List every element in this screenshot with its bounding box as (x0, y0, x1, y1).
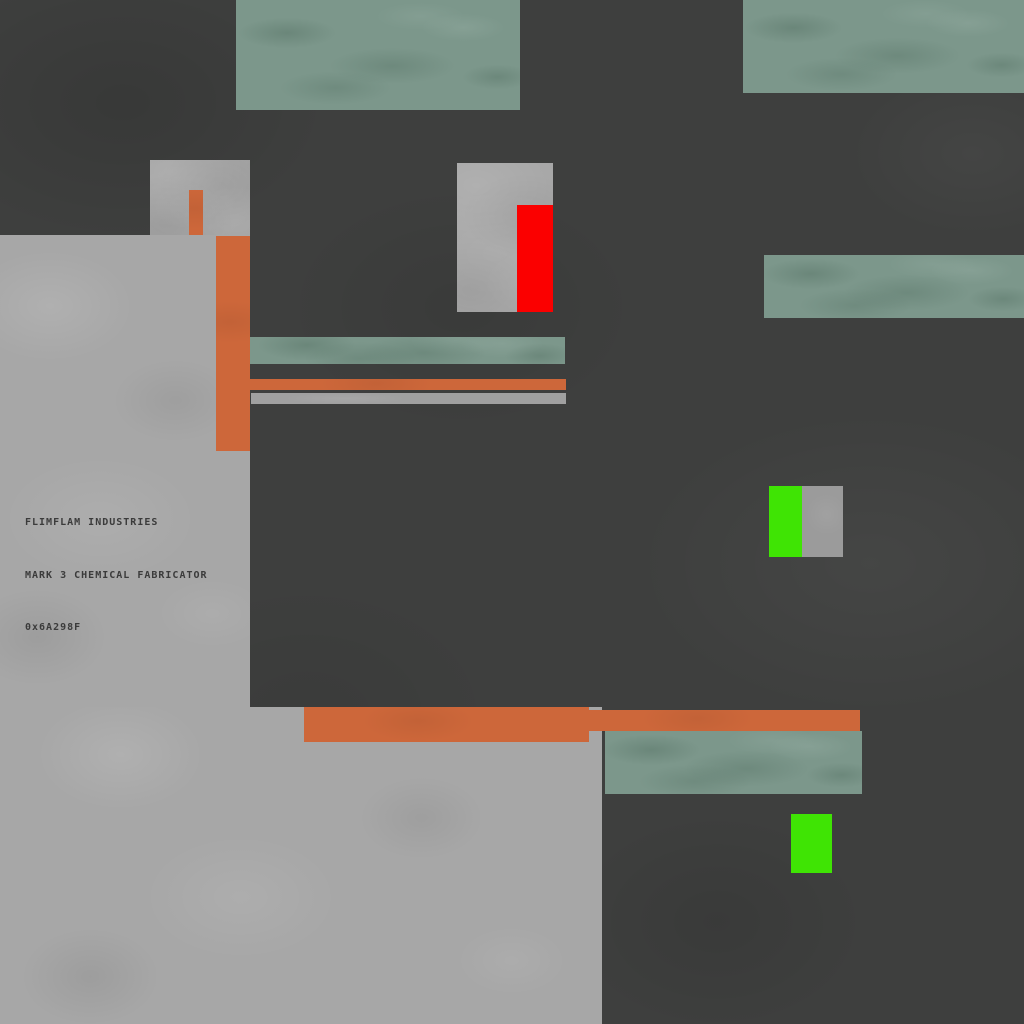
conveyor-pipe-lower (589, 710, 860, 731)
red-status-bar (517, 205, 553, 312)
fabricator-scene: FLIMFLAM INDUSTRIES MARK 3 CHEMICAL FABR… (0, 0, 1024, 1024)
conveyor-pipe-upper (304, 707, 589, 742)
pipe-orange-horizontal (250, 379, 566, 390)
pipe-stub-orange (189, 190, 203, 236)
duct-right-mid (764, 255, 1024, 318)
duct-top-right (743, 0, 1024, 93)
indicator-housing (802, 486, 843, 557)
duct-top-left (236, 0, 520, 110)
lime-indicator-mid (769, 486, 802, 557)
lime-indicator-bottom (791, 814, 832, 873)
machine-label-line3: 0x6A298F (25, 619, 285, 637)
machine-label-line1: FLIMFLAM INDUSTRIES (25, 514, 285, 532)
duct-horizontal-mid (250, 337, 565, 364)
chassis-panel-bottom (0, 707, 602, 1024)
machine-label: FLIMFLAM INDUSTRIES MARK 3 CHEMICAL FABR… (25, 479, 285, 672)
duct-bottom-right (605, 731, 862, 794)
machine-label-line2: MARK 3 CHEMICAL FABRICATOR (25, 567, 285, 585)
rail-gray-horizontal (251, 393, 566, 404)
pipe-orange-vertical (216, 236, 250, 451)
